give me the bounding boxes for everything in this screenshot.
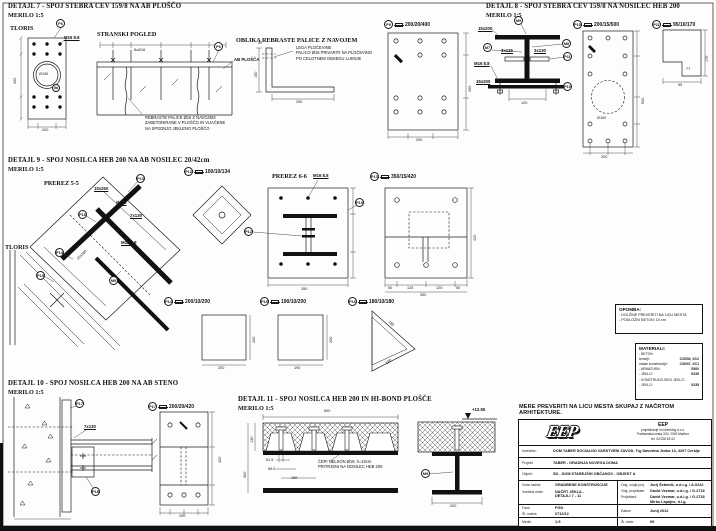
titleblock-objekt-row: Objekt: SD - DOM STAREJŠIH OBČANOV - OBJ… [519,469,711,481]
dim-66-w: 350 [301,287,307,291]
dim-120: 120 [521,101,527,105]
detail9-linework [10,177,474,371]
objekt-label: Objekt: [522,472,533,476]
plate-symbol-icon [584,23,592,27]
position-bubble-5a: 5a [52,84,60,92]
detail11-title: DETAJL 11 - SPOJ NOSILCA HEB 200 IN HI-B… [238,396,432,403]
detail9-prerez66-label: PREREZ 6-6 [272,173,307,180]
anchor-count-label: 8xØ16 [134,48,145,52]
mat-val: S235 [691,383,699,388]
position-bubble-p15a: P15 [36,271,45,280]
position-bubble-m9: M9 [514,16,523,25]
detail8-linework [488,24,708,155]
detail9-tloris-label: TLORIS [5,244,28,251]
plate-callout-p15: P15 190/10/200 [260,297,306,306]
projektant-value2: Mirko Lapajne, d.i.g. [650,500,687,504]
titleblock-investitor-row: Investitor: DOM TABER SOCIALNO VARSTVENI… [519,446,711,458]
plate-callout-p9: P9 200/20/400 [384,20,430,29]
title-block: EEP EEP projektiranje in inženiring d.o.… [518,419,712,527]
detail9-prerez55-label: PREREZ 5-5 [44,180,79,187]
detail7-stranski-label: STRANSKI POGLED [97,31,156,38]
datum-value: Junij 2012 [650,509,668,513]
position-bubble-p17: P17 [75,399,84,408]
detail10-linework [8,397,215,519]
dim-130: 130 [250,437,254,443]
dim-p13-w: 350 [420,293,426,297]
bolt-spec-label-d8: M16 8.8 [474,61,490,66]
rebar-note: REBRASTE PALICE Ø16 Z NAVOJEM ZABETONIRA… [145,115,225,131]
plate-callout-p10: P10 200/15/500 [573,20,619,29]
dim-p17-w: 200 [179,514,185,518]
dim-400: 400 [13,78,17,84]
detail7-scale: MERILO 1:5 [8,12,44,19]
position-bubble-p9: P9 [384,20,393,29]
dim-50: 50 [258,41,262,45]
drawing-sheet: DETAJL 7 - SPOJ STEBRA CEV 159/8 NA AB P… [0,0,716,531]
plate-callout-p14: P14 200/10/200 [164,297,210,306]
position-bubble-m9a: M9 [109,276,118,285]
dim-p9-h: 400 [468,86,472,92]
plate-size-p11: 95/10/170 [673,22,695,28]
titleblock-merilo-row: Merilo 1:5 Št. risbe 09 [519,518,711,528]
plate-symbol-icon [159,405,167,409]
plate-callout-p16: P16 180/10/180 [348,297,394,306]
position-bubble-m8: M8 [562,39,571,48]
bolt-m16-label-d9: M16 8.8 [313,173,329,178]
dim-p15-w: 190 [294,366,300,370]
weld-135-label: 3x135 [501,48,513,53]
position-bubble-p10c: P10 [573,20,582,29]
position-bubble-p16c: P16 [348,297,357,306]
dim-200: 200 [42,128,48,132]
plate-callout-p11: P11 95/10/170 [652,20,695,29]
position-bubble-p6-side: P6 [214,42,223,51]
plate-size-p9: 200/20/400 [405,22,430,28]
datum-label: Datum [621,509,631,513]
position-bubble-p14c: P14 [164,297,173,306]
titleblock-projekt-row: Projekt: TABER - GRADNJA NOVEGA DOMA [519,458,711,469]
plate-size-p15: 190/10/200 [281,299,306,305]
bolt-spec-label: M16 8.8 [64,35,80,40]
dim-600: 600 [324,409,330,413]
materiali-row: - JEKLO:S235 [639,383,699,388]
position-bubble-p10: P10 [563,82,572,91]
pipe-diameter-label: Ø159 [39,72,48,76]
weld-10x250-label: 10x250 [94,186,108,191]
hole-dia-label: Ø160 [597,116,606,120]
dim-p11-s: 77 [686,67,690,71]
position-bubble-p11: P11 [563,52,572,61]
position-bubble-p12b: P12 [244,227,253,236]
dim-p14-w: 200 [218,366,224,370]
plate-size-p17: 200/20/420 [169,404,194,410]
plate-symbol-icon [195,170,203,174]
detail9-title: DETAJL 9 - SPOJ NOSILCA HEB 200 NA AB NO… [8,157,210,164]
dim-chain-50a: 50 [388,286,392,290]
vrsta-label: Vrsta načrta: [522,483,541,487]
dim-150: 150 [254,72,258,78]
plate-callout-p17: P17 200/20/420 [148,402,194,411]
weld-7x130-label: 7x130 [130,213,142,218]
materiali-box: MATERIALI: - BETON temelji:C25/30, XC2 o… [635,343,703,400]
odg-vodja-label: Odg. vodja proj. [621,483,645,487]
plate-callout-p12: P12 100/10/134 [184,167,230,176]
opomba-box: OPOMBA: - DOLŽINE PREVERITI NA LICU MEST… [615,304,703,334]
dim-chain-125a: 125 [407,286,413,290]
position-bubble-m9-d11: M9 [421,469,430,478]
plate-position-note: LEGA PLOČEVINE PALICO Ø16 PRIVARITI NA P… [296,45,372,61]
plate-symbol-icon [395,23,403,27]
detail7-linework [20,28,470,139]
objekt-value: SD - DOM STAREJŠIH OBČANOV - OBJEKT A [553,472,635,476]
bolt-m12-label: M12 8.8 [121,240,137,245]
site-check-note: MERE PREVERITI NA LICU MESTA SKUPAJ Z NA… [519,404,713,416]
dim-89-5: 89.5 [268,467,275,471]
mat-key: - JEKLO: [639,383,653,388]
projekt-value: TABER - GRADNJA NOVEGA DOMA [553,461,618,465]
plate-symbol-icon [175,300,183,304]
detail10-scale: MERILO 1:5 [8,389,44,396]
projekt-label: Projekt: [522,461,534,465]
position-bubble-p11c: P11 [652,20,661,29]
dim-p11-w: 95 [678,83,682,87]
st-risbe-label: Št. risbe [621,520,633,524]
st-nacrta-label: Št. načrta [522,512,537,516]
vsebina-label: Vsebina risbe: [522,490,544,494]
odg-proj-value: David Vezmar, u.d.i.g. / G-2718 [650,489,705,493]
plate-size-p14: 200/10/200 [185,299,210,305]
position-bubble-p16a: P16 [78,210,87,219]
position-bubble-m7: M7 [483,43,492,52]
ab-plosca-label: AB PLOŠČA [234,57,259,62]
dim-250: 250 [296,100,302,104]
titleblock-content-row: Vrsta načrta: GRADBENE KONSTRUKCIJE Vseb… [519,481,711,505]
projektant-label: Projektant [621,495,636,499]
titleblock-faza-row: Faza PGD Št. načrta 0712/12 Datum Junij … [519,505,711,518]
weld-bottom-label: 15x200 [476,79,490,84]
position-bubble-p13b: P13 [355,198,364,207]
company-line3: tel. 02/228 63 00 [615,437,711,441]
plate-symbol-icon [271,300,279,304]
projektant-value1: David Vezmar, u.d.i.g. / G-2718 [650,495,705,499]
mat-val: S235 [691,372,699,377]
plate-size-p12: 100/10/134 [205,169,230,175]
detail11-scale: MERILO 1:5 [238,405,274,412]
position-bubble-p13c2: P13 [370,172,379,181]
plate-size-p13: 350/15/420 [391,174,416,180]
plate-size-p10: 200/15/500 [594,22,619,28]
detail9-scale: MERILO 1:5 [8,166,44,173]
position-bubble-p14a: P14 [55,248,64,257]
weld-7x130-label-d10: 7x130 [84,424,96,429]
vsebina-value: NAČRT JEKLA - DETAJLI 7 - 11 [555,490,584,498]
merilo-label: Merilo [522,520,531,524]
detail7-oblika-label: OBLIKA REBRASTE PALICE Z NAVOJEM [236,37,357,44]
odg-proj-label: Odg. projektant [621,489,644,493]
dim-p11-h: 170 [705,56,709,62]
st-nacrta-value: 0712/12 [555,512,569,516]
faza-value: PGD [555,506,563,510]
plate-symbol-icon [359,300,367,304]
position-bubble-p15c: P15 [260,297,269,306]
weld-130-label: 3x130 [534,48,546,53]
dim-200-d11: 200 [450,504,456,508]
plate-symbol-icon [381,175,389,179]
dia-150-label: Ø150 [116,200,127,205]
odg-vodja-value: Jurij Šebenik, u.d.i.g. / A-0222 [650,483,703,487]
plate-callout-p13: P13 350/15/420 [370,172,416,181]
vrsta-value: GRADBENE KONSTRUKCIJE [555,483,608,487]
detail7-tloris-label: TLORIS [10,25,33,32]
dim-61-5: 61.5 [266,458,273,462]
dim-p15-h: 200 [329,337,333,343]
dim-p13-h: 420 [473,235,477,241]
dim-300: 300 [243,472,247,478]
dim-p17-h: 420 [218,457,222,463]
nelson-studs-note: ČEPI NELSON Ø19, h=10cm PRITRJENI NA NOS… [318,459,382,470]
opomba-line2: - PODLOŽNI BETON: 10 cm [619,318,699,323]
position-bubble-p13a: P13 [136,174,145,183]
detail7-title: DETAJL 7 - SPOJ STEBRA CEV 159/8 NA AB P… [8,3,181,10]
materiali-title: MATERIALI: [639,346,699,351]
dim-chain-50b: 50 [456,286,460,290]
opomba-title: OPOMBA: [619,307,699,312]
merilo-value: 1:5 [555,520,561,524]
st-risbe-value: 09 [650,520,654,524]
investitor-value: DOM TABER SOCIALNO VARSTVENI ZAVOD, Trg … [553,449,700,453]
dim-p10-h: 500 [641,98,645,104]
dim-150-d11: 150 [291,476,297,480]
dim-p14-h: 200 [252,337,256,343]
position-bubble-p17c: P17 [148,402,157,411]
faza-label: Faza [522,506,530,510]
detail10-title: DETAJL 10 - SPOJ NOSILCA HEB 200 NA AB S… [8,380,178,387]
plate-size-p16: 180/10/180 [369,299,394,305]
detail8-title: DETAJL 8 - SPOJ STEBRA CEV 159/8 NA NOSI… [486,3,680,10]
dim-p9-w: 200 [416,138,422,142]
elevation-label: +12.50 [472,407,485,412]
position-bubble-p18: P18 [91,487,100,496]
investitor-label: Investitor: [522,449,537,453]
position-bubble-p12c: P12 [184,167,193,176]
eep-logo: EEP [545,422,579,442]
plate-symbol-icon [663,23,671,27]
dim-p10-w: 200 [601,155,607,159]
dim-chain-125b: 125 [436,286,442,290]
weld-top-label: 15x200 [478,26,492,31]
titleblock-logo-row: EEP EEP projektiranje in inženiring d.o.… [519,420,711,446]
position-bubble-p6: P6 [56,19,65,28]
